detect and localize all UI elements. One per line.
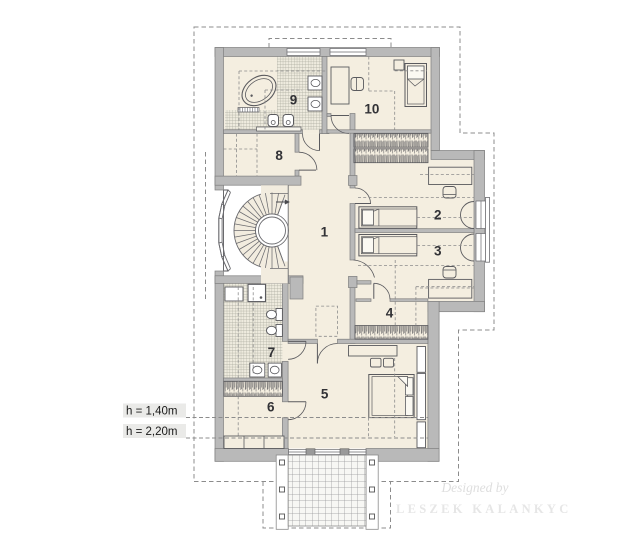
svg-text:10: 10 bbox=[364, 102, 379, 117]
svg-text:8: 8 bbox=[275, 148, 283, 163]
svg-text:Designed by: Designed by bbox=[440, 480, 508, 495]
svg-text:h = 2,20m: h = 2,20m bbox=[126, 426, 177, 438]
svg-text:LESZEK KALANKYC: LESZEK KALANKYC bbox=[396, 502, 572, 516]
svg-text:1: 1 bbox=[321, 225, 329, 240]
svg-text:6: 6 bbox=[267, 400, 275, 415]
svg-text:5: 5 bbox=[321, 387, 329, 402]
svg-text:7: 7 bbox=[268, 345, 276, 360]
svg-text:4: 4 bbox=[386, 306, 394, 321]
svg-text:h = 1,40m: h = 1,40m bbox=[126, 406, 177, 418]
svg-text:3: 3 bbox=[434, 244, 442, 259]
svg-text:2: 2 bbox=[434, 208, 442, 223]
svg-text:9: 9 bbox=[290, 93, 298, 108]
